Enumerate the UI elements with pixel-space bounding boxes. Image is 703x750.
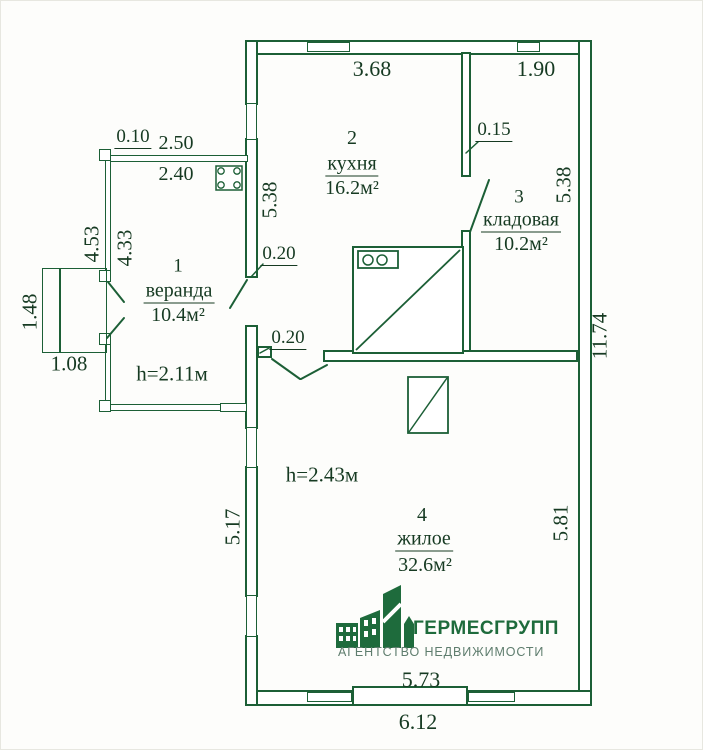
burner-left-icon bbox=[363, 255, 373, 265]
burner-right-icon bbox=[377, 255, 387, 265]
room-storage-area: 10.2м² bbox=[494, 234, 548, 254]
leader-storage-wall bbox=[466, 142, 478, 153]
door-swing-living-left bbox=[272, 359, 300, 379]
dim-veranda-wall: 0.10 bbox=[114, 127, 151, 149]
logo-name: ГЕРМЕСГРУПП bbox=[413, 618, 559, 640]
logo-buildings-icon bbox=[332, 582, 416, 650]
door-swing-kitchen bbox=[230, 280, 247, 308]
dim-top-storage: 1.90 bbox=[517, 58, 556, 80]
table-leg-icon bbox=[218, 168, 224, 174]
door-swing-living-right bbox=[301, 365, 327, 379]
dim-veranda-left-inner: 4.33 bbox=[115, 230, 136, 267]
room-kitchen-number: 2 bbox=[347, 128, 357, 148]
dim-kitchen-left-height: 5.38 bbox=[260, 182, 281, 219]
room-living-area: 32.6м² bbox=[398, 555, 452, 575]
door-swing-porch-upper bbox=[108, 282, 124, 302]
logo-tagline: АГЕНТСТВО НЕДВИЖИМОСТИ bbox=[338, 645, 544, 659]
room-kitchen-area: 16.2м² bbox=[325, 178, 379, 198]
dim-storage-right-height: 5.38 bbox=[554, 167, 575, 204]
room-veranda-name: веранда bbox=[144, 281, 215, 304]
table-leg-icon bbox=[218, 182, 224, 188]
dim-door-wall-upper: 0.20 bbox=[260, 244, 297, 266]
door-swing-porch-lower bbox=[107, 318, 124, 338]
room-living-height: h=2.43м bbox=[286, 465, 358, 486]
logo-mid-building bbox=[360, 610, 380, 648]
table-leg-icon bbox=[234, 168, 240, 174]
dim-porch-width: 1.08 bbox=[51, 354, 88, 375]
room-veranda-area: 10.4м² bbox=[151, 305, 205, 325]
dim-bottom-inner: 5.73 bbox=[402, 669, 441, 691]
room-living-name: жилое bbox=[395, 529, 453, 552]
dim-bottom-outer: 6.12 bbox=[399, 711, 438, 733]
room-living-number: 4 bbox=[417, 505, 427, 525]
dim-top-kitchen: 3.68 bbox=[353, 58, 392, 80]
dim-door-wall-lower: 0.20 bbox=[269, 328, 306, 350]
dim-veranda-left-outer: 4.53 bbox=[82, 226, 103, 263]
room-storage-number: 3 bbox=[514, 188, 524, 207]
room-veranda-number: 1 bbox=[173, 257, 183, 276]
dim-porch-depth: 1.48 bbox=[20, 294, 41, 331]
room-veranda-height: h=2.11м bbox=[136, 364, 208, 385]
dim-living-right-height: 5.81 bbox=[551, 505, 572, 542]
floor-plan: 3.68 1.90 0.15 5.38 5.38 0.20 0.20 0.10 … bbox=[0, 0, 703, 750]
dim-living-left-height: 5.17 bbox=[223, 509, 244, 546]
dim-storage-wall: 0.15 bbox=[475, 120, 512, 142]
dim-veranda-top-outer: 2.50 bbox=[159, 133, 194, 153]
table-leg-icon bbox=[234, 182, 240, 188]
room-storage-name: кладовая bbox=[481, 210, 561, 233]
dim-right-total: 11.74 bbox=[590, 313, 611, 359]
room-kitchen-name: кухня bbox=[325, 154, 378, 177]
dim-veranda-top-inner: 2.40 bbox=[159, 164, 194, 184]
